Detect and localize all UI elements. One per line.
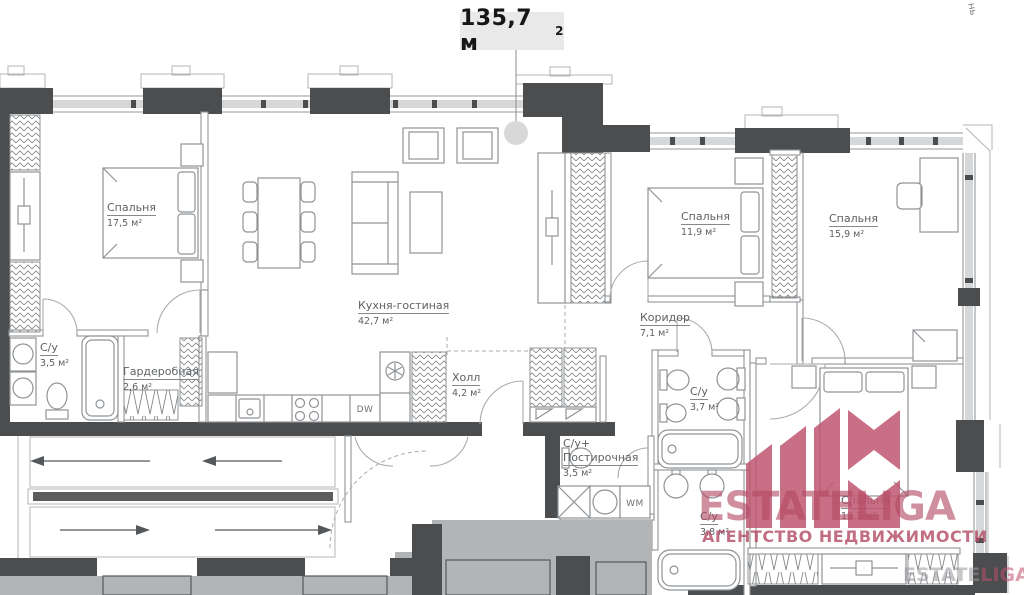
dishwasher-label: DW (357, 405, 374, 415)
dining-set (243, 178, 315, 268)
room-label-bathroom-1: С/у 3,5 м² (40, 336, 69, 370)
room-label-bedroom-2: Спальня 11,9 м² (681, 205, 730, 239)
edge-cutoff-label: нь (965, 2, 978, 16)
room-label-corridor: Коридор 7,1 м² (640, 306, 690, 340)
room-label-bedroom-3: Спальня 15,9 м² (829, 207, 878, 241)
kitchen-counter (208, 352, 410, 422)
tv-unit-kitchen (538, 153, 565, 303)
total-area-badge: 135,7 м2 (460, 12, 564, 50)
armchairs (403, 128, 498, 163)
washer-label: WM (626, 499, 644, 509)
tv-unit-4 (822, 554, 906, 584)
total-area-value: 135,7 м (460, 6, 554, 56)
leader-dot (504, 121, 528, 145)
room-label-wardrobe: Гардеробная 2,6 м² (123, 360, 199, 394)
watermark-brand: ESTATELIGA (698, 484, 955, 530)
room-label-bathroom-2: С/у 3,7 м² (690, 380, 719, 414)
tv-unit-1 (10, 172, 40, 260)
total-area-sup: 2 (555, 24, 564, 38)
watermark-small: ESTATELIGA (903, 564, 1024, 586)
room-label-hallway: Холл 4,2 м² (452, 366, 481, 400)
desk-area (897, 158, 958, 361)
room-label-bathroom-laundry: С/у+ Постирочная 3,5 м² (563, 432, 638, 480)
room-label-bedroom-1: Спальня 17,5 м² (107, 196, 156, 230)
sofa (352, 172, 398, 274)
coffee-table (410, 192, 442, 253)
watermark-tagline: АГЕНТСТВО НЕДВИЖИМОСТИ (702, 527, 988, 546)
room-label-kitchen-living: Кухня-гостиная 42,7 м² (358, 294, 449, 328)
floorplan-page: DW WM Спальня 17,5 м² Кухня-гостиная 42,… (0, 0, 1024, 595)
